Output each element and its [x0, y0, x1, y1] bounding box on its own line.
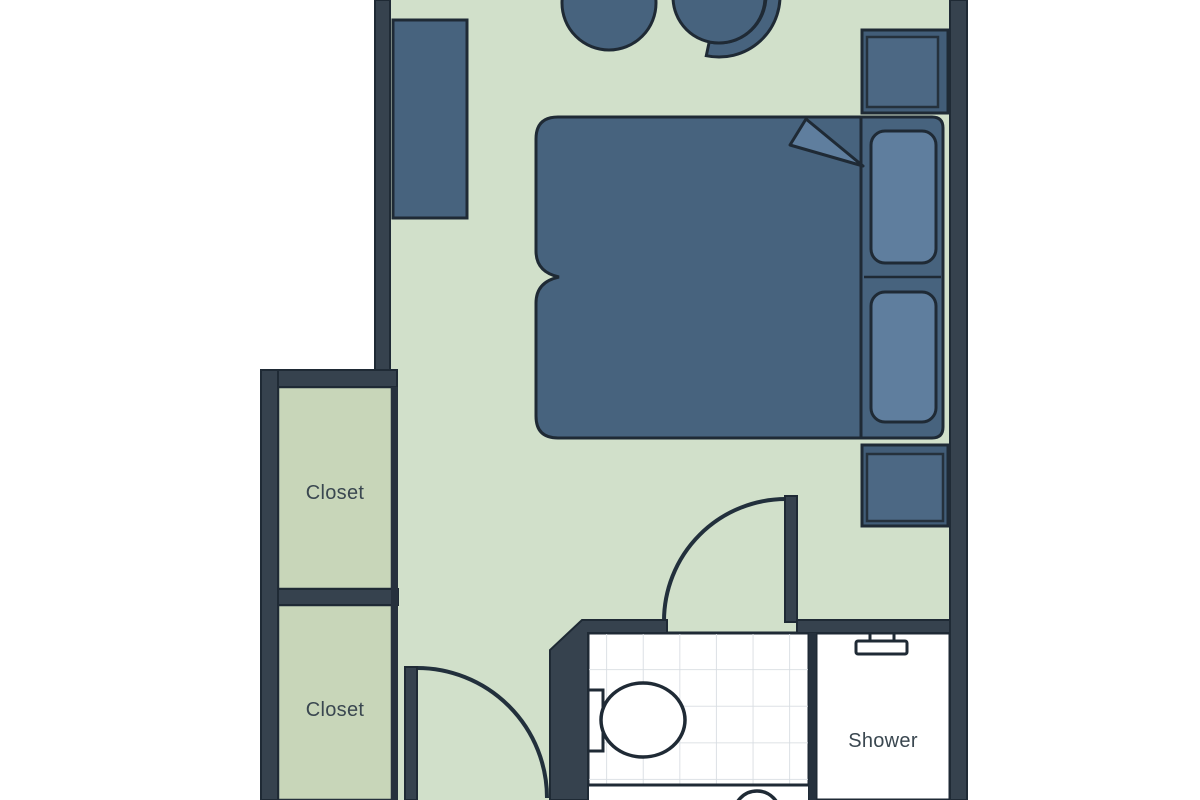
shower-head — [856, 641, 907, 654]
bathroom-door-leaf — [785, 496, 797, 622]
floor-plan-canvas: Closet Closet Shower — [0, 0, 1200, 800]
wall-closet-divider — [278, 589, 398, 605]
pillow-top — [871, 131, 936, 263]
closet-upper-label: Closet — [306, 482, 365, 504]
floor-plan: Closet Closet Shower — [0, 0, 1200, 800]
toilet-bowl — [601, 683, 685, 757]
wall-closet-left — [261, 370, 278, 800]
wall-right — [950, 0, 967, 800]
bed-duvet — [536, 117, 861, 438]
wall-left-upper — [375, 0, 390, 387]
wall-closet-top — [261, 370, 397, 387]
shower-floor — [816, 633, 950, 800]
closet-lower-label: Closet — [306, 699, 365, 721]
wall-bathroom-top — [797, 620, 950, 633]
dresser — [393, 20, 467, 218]
nightstand-upper-top — [867, 37, 938, 107]
shower-label: Shower — [848, 730, 918, 752]
wall-closet-front — [391, 387, 398, 800]
wall-shower-divider — [809, 633, 816, 800]
nightstand-lower-top — [867, 454, 943, 521]
entrance-door-leaf — [405, 667, 417, 800]
pillow-bottom — [871, 292, 936, 422]
